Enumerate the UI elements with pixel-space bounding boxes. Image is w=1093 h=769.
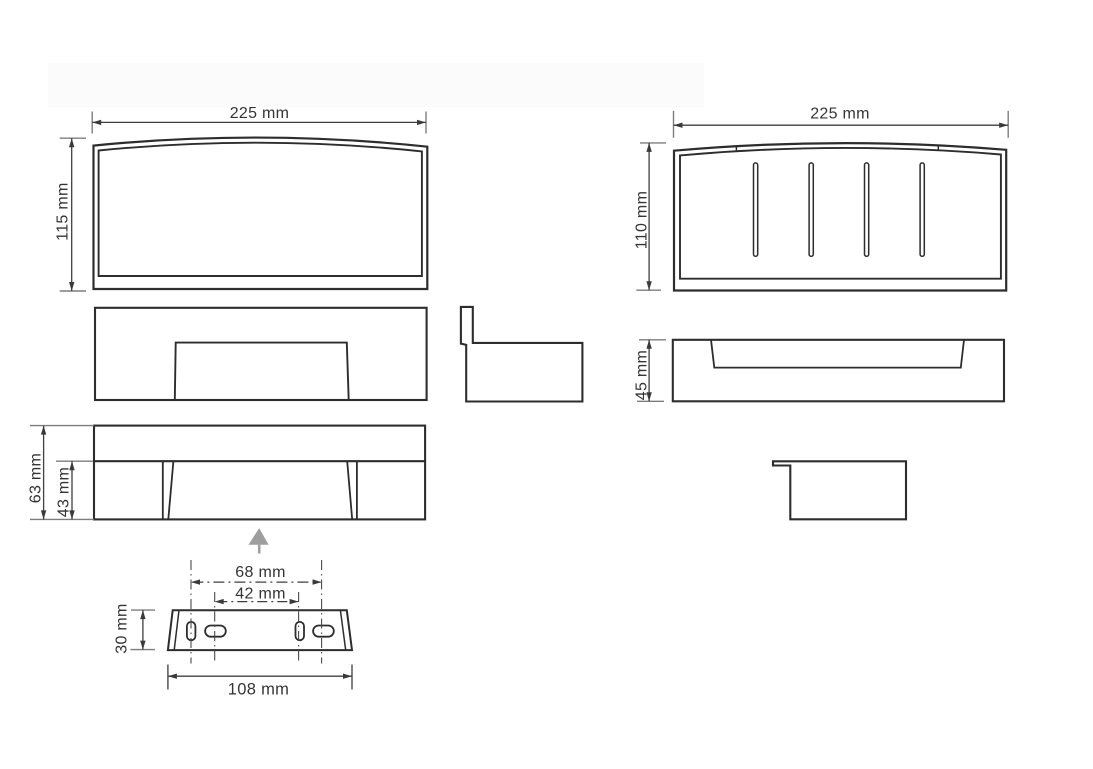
svg-text:30 mm: 30 mm	[114, 603, 131, 653]
svg-text:68 mm: 68 mm	[235, 564, 285, 581]
svg-text:42 mm: 42 mm	[235, 586, 285, 603]
svg-text:225 mm: 225 mm	[230, 105, 290, 122]
svg-text:43 mm: 43 mm	[55, 467, 72, 517]
svg-text:110 mm: 110 mm	[634, 191, 651, 249]
svg-text:63 mm: 63 mm	[28, 453, 45, 503]
svg-text:115 mm: 115 mm	[55, 182, 72, 240]
svg-text:45 mm: 45 mm	[633, 350, 650, 400]
svg-text:108 mm: 108 mm	[228, 681, 289, 699]
svg-text:225 mm: 225 mm	[810, 106, 870, 123]
